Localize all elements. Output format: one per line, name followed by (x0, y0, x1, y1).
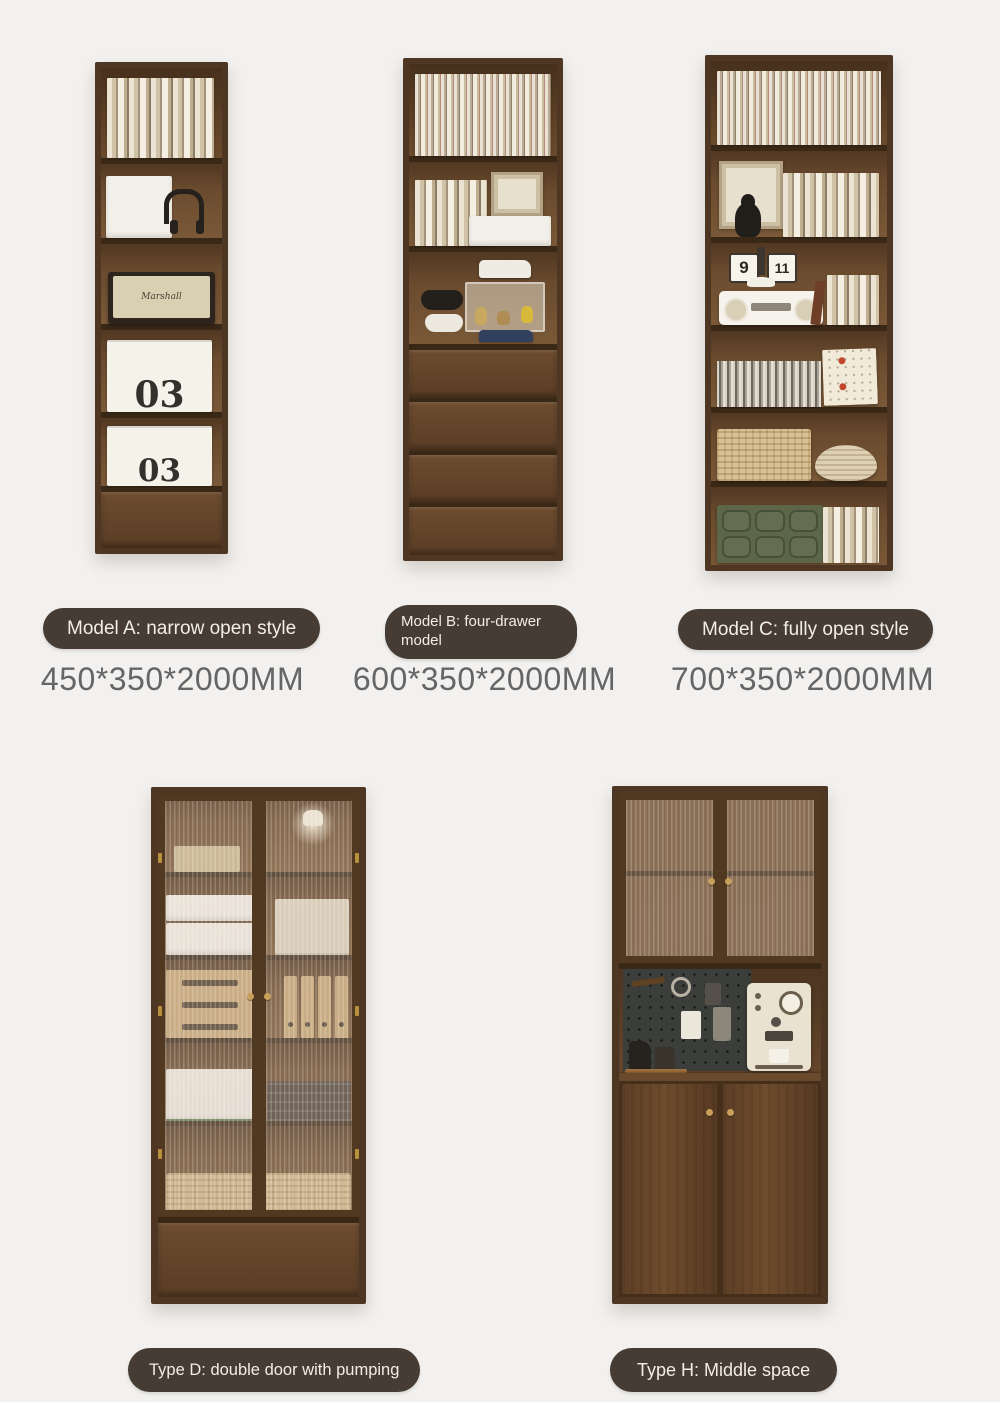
figurine (521, 306, 533, 323)
fluted-glass-pane (727, 800, 814, 956)
variant-label: Model A: narrow open style (67, 618, 296, 640)
pressure-gauge (779, 991, 803, 1015)
fluted-glass-pane (626, 800, 713, 956)
shelf-clock-radio: 9 11 (711, 243, 887, 331)
coffee-jar (655, 1047, 675, 1071)
radio-speaker (724, 298, 748, 322)
cabinet-type-d-body (158, 794, 359, 1297)
bottom-drawer (101, 492, 222, 548)
hinge (158, 1149, 162, 1159)
door-knob (247, 993, 254, 1000)
speaker-grille: Marshall (113, 276, 210, 318)
drawer-2 (409, 402, 557, 450)
calendar-mark (839, 383, 846, 390)
steam-knob (771, 1017, 781, 1027)
speaker-brand-script: Marshall (141, 292, 181, 302)
figure-display-case (465, 282, 545, 332)
desk-calendar (822, 348, 878, 406)
hanging-filter (671, 977, 691, 997)
drawer-1 (409, 350, 557, 398)
flip-clock-base (747, 277, 775, 287)
white-binder-box (106, 176, 172, 238)
shelf-magazines (711, 61, 887, 151)
cabinet-type-h-body (619, 793, 821, 1297)
door-knob (708, 878, 715, 885)
hinge (355, 1149, 359, 1159)
hinge (158, 1006, 162, 1016)
shelf-greenbox-books (711, 487, 887, 565)
door-knob (727, 1109, 734, 1116)
shelf-baskets (711, 413, 887, 487)
magazines-row (717, 71, 881, 145)
headphone-pad (170, 220, 178, 234)
toy-car-blue (479, 330, 533, 342)
figurine (475, 307, 487, 325)
hanging-grinder (705, 983, 721, 1005)
variant-label: Model B: four-drawer model (401, 613, 561, 651)
shelf-storage-box-2: 03 (101, 418, 222, 492)
glass-door-left (158, 794, 259, 1217)
drawer-3 (409, 455, 557, 503)
picture-frame-mat (498, 179, 536, 209)
variant-label-pill-type-d: Type D: double door with pumping (128, 1348, 420, 1392)
furniture-variant-sheet: Marshall 03 03 (0, 0, 1000, 1402)
green-box-panel (722, 510, 751, 532)
variant-label-pill-type-h: Type H: Middle space (610, 1348, 837, 1392)
lower-door-section (619, 1081, 821, 1297)
fluted-glass-pane (266, 801, 353, 1210)
headphone-pad (196, 220, 204, 234)
variant-label: Type D: double door with pumping (149, 1361, 399, 1380)
pour-over-kettle (629, 1041, 651, 1071)
bottom-drawer (158, 1217, 359, 1297)
door-knob (725, 878, 732, 885)
round-basket (815, 445, 877, 481)
green-box-panel (789, 536, 818, 558)
bookcase-model-a-interior: Marshall 03 03 (101, 68, 222, 548)
shelf-speaker: Marshall (101, 244, 222, 330)
dimension-text-model-a: 450*350*2000MM (40, 661, 305, 698)
upper-glass-section (619, 793, 821, 963)
group-head (765, 1031, 793, 1041)
door-knob (264, 993, 271, 1000)
machine-button (755, 1005, 761, 1011)
bust-sculpture (735, 203, 761, 237)
magazines-row (415, 74, 551, 156)
shelf-cds-calendar (711, 331, 887, 413)
bookcase-model-c: 9 11 (705, 55, 893, 571)
variant-label-pill-model-a: Model A: narrow open style (43, 608, 320, 649)
dimension-text-model-b: 600*350*2000MM (352, 661, 617, 698)
radio-display (751, 303, 791, 311)
wood-door-left (619, 1081, 720, 1297)
counter-top (619, 1073, 821, 1081)
shelf-books-box (409, 162, 557, 252)
drawer-4 (409, 507, 557, 555)
storage-box-03: 03 (107, 426, 212, 486)
espresso-cup (769, 1049, 789, 1063)
fluted-glass-pane (165, 801, 252, 1210)
drawer-stack (409, 350, 557, 555)
variant-label-pill-model-b: Model B: four-drawer model (385, 605, 577, 659)
bookcase-model-b-interior (409, 64, 557, 555)
picture-frame (491, 172, 543, 216)
machine-button (755, 993, 761, 999)
wicker-basket (717, 429, 811, 481)
headphones-icon (164, 189, 204, 224)
cd-stack (717, 361, 821, 407)
toy-suv-white (479, 260, 531, 278)
long-white-box (469, 216, 551, 246)
paper-cups (681, 1011, 701, 1039)
drip-tray (755, 1065, 803, 1069)
bookcase-model-b (403, 58, 563, 561)
calendar-mark (838, 357, 845, 364)
bookcase-model-c-interior: 9 11 (711, 61, 887, 565)
books-row (783, 173, 879, 237)
glass-door-right (259, 794, 360, 1217)
bookcase-model-a: Marshall 03 03 (95, 62, 228, 554)
storage-box-03: 03 (107, 340, 212, 412)
hinge (355, 1006, 359, 1016)
glass-door-section (158, 794, 359, 1217)
glass-door-left (619, 793, 720, 963)
marshall-speaker: Marshall (108, 272, 215, 324)
green-box-panel (755, 536, 784, 558)
storage-box-number: 03 (138, 457, 181, 486)
shelf-binder-headphones (101, 164, 222, 244)
books-row (107, 78, 214, 158)
game-controller-black (421, 290, 463, 310)
middle-open-section (619, 969, 821, 1081)
shelf-top-books (101, 68, 222, 164)
storage-box-number: 03 (134, 379, 184, 412)
books-row (827, 275, 879, 325)
dimension-text-model-c: 700*350*2000MM (670, 661, 935, 698)
green-metal-box (717, 505, 823, 563)
hinge (158, 853, 162, 863)
leaning-book (810, 281, 825, 326)
wood-door-right (720, 1081, 821, 1297)
figurine (497, 311, 510, 325)
game-controller-white (425, 314, 463, 332)
variant-label-pill-model-c: Model C: fully open style (678, 609, 933, 650)
shelf-frame-bust-books (711, 151, 887, 243)
shelf-toys (409, 252, 557, 350)
shelf-magazines (409, 64, 557, 162)
variant-label: Model C: fully open style (702, 619, 909, 641)
door-knob (706, 1109, 713, 1116)
retro-radio (719, 291, 823, 325)
green-box-panel (722, 536, 751, 558)
shelf-storage-box-1: 03 (101, 330, 222, 418)
green-box-panel (755, 510, 784, 532)
hinge (355, 853, 359, 863)
books-row (823, 507, 879, 563)
cabinet-type-d (151, 787, 366, 1304)
glass-door-right (720, 793, 821, 963)
variant-label: Type H: Middle space (637, 1360, 810, 1381)
espresso-machine (747, 983, 811, 1071)
cabinet-type-h (612, 786, 828, 1304)
glass-canister (713, 1007, 731, 1041)
green-box-panel (789, 510, 818, 532)
